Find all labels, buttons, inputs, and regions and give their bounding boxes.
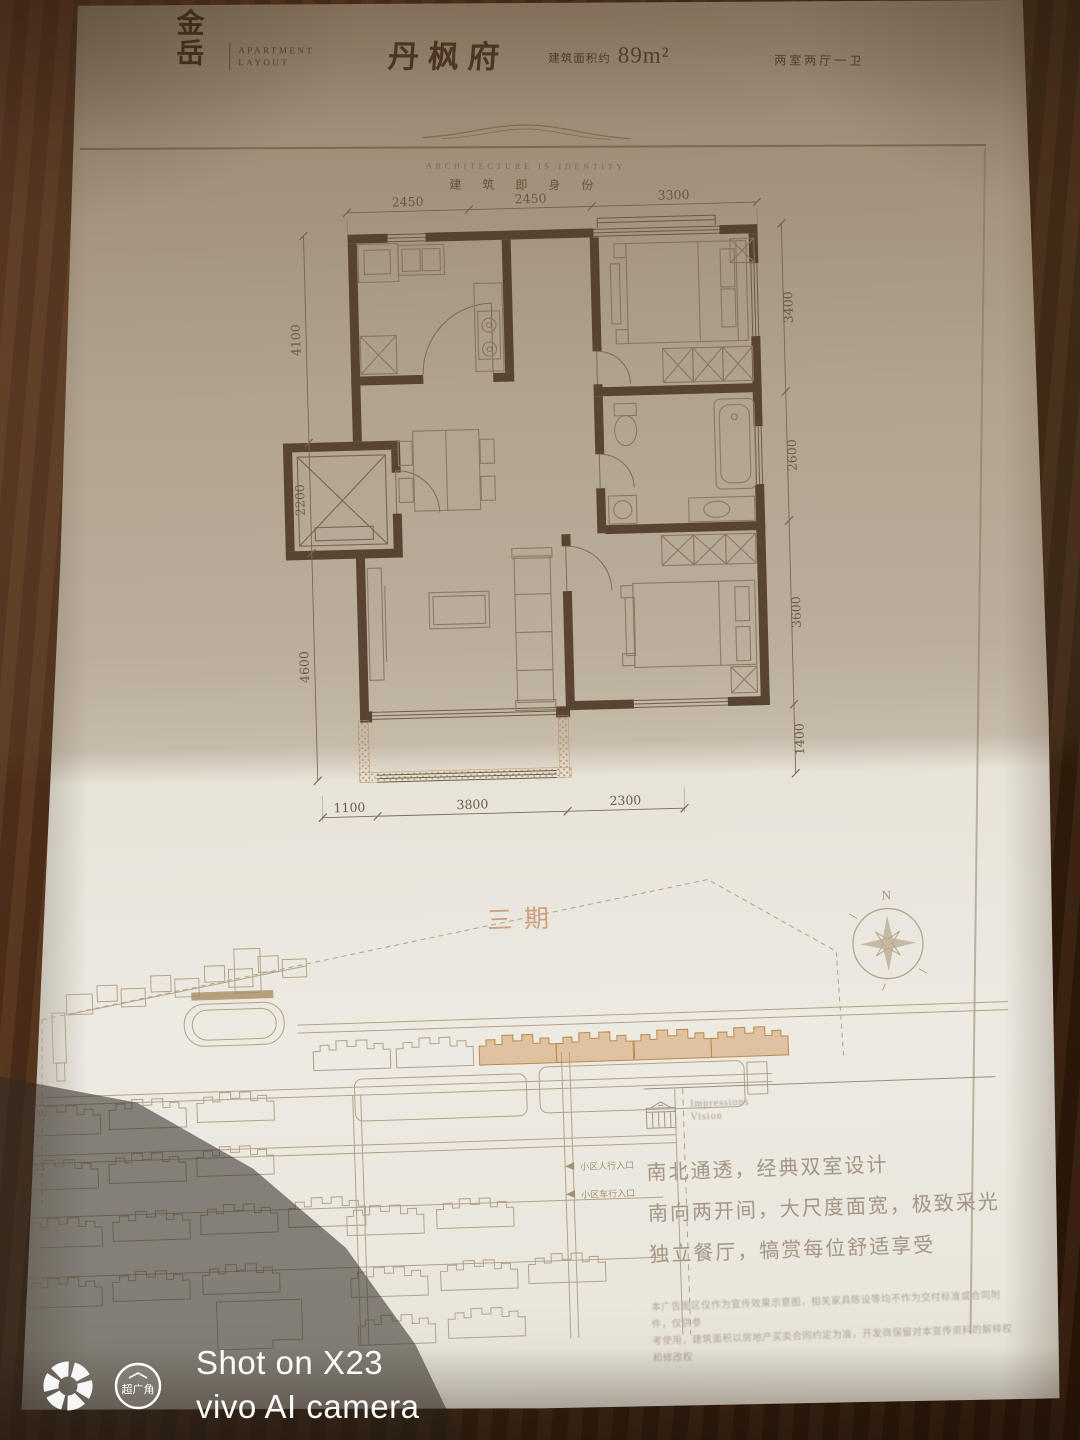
legend-item-2: 小区车行入口 (581, 1187, 635, 1200)
walls-layer (277, 224, 770, 724)
area-label: 建筑面积约 (548, 50, 611, 66)
brand-text-line1: Impressions (690, 1096, 750, 1111)
camera-watermark: 超广角 Shot on X23 vivo AI camera (36, 1338, 506, 1440)
dim-top-1: 2450 (392, 194, 424, 210)
watermark-line2: vivo AI camera (196, 1388, 419, 1426)
floorplan-drawing: 2450 2450 3300 4100 2200 4600 3400 2600 … (256, 183, 813, 857)
info-block: Impressions Vision 南北通透，经典双室设计 南向两开间，大尺度… (644, 1076, 1019, 1349)
watermark-line1: Shot on X23 (196, 1344, 383, 1382)
brand-stamp-icon (644, 1098, 679, 1131)
brand-logo-char-bottom: 岳 (176, 40, 204, 70)
dim-left-1: 4100 (288, 324, 304, 356)
tagline-english: ARCHITECTURE IS IDENTITY (418, 160, 634, 171)
dimension-lines (299, 197, 801, 822)
windows-layer (359, 214, 770, 782)
legend-arrow-icon (566, 1190, 575, 1198)
disclaimer: 本广告图区仅作为宣传效果示意图，相关家具陈设等均不作为交付标准或合同附件，仅供参… (651, 1288, 1019, 1369)
compass-icon: N (848, 886, 927, 991)
logo-divider (229, 42, 230, 70)
compass-north-label: N (881, 887, 891, 902)
project-name: 丹枫府 (387, 31, 510, 77)
brand-logo-char-top: 金 (176, 10, 204, 40)
legend-item-1: 小区人行入口 (580, 1159, 634, 1172)
tagline-block: ARCHITECTURE IS IDENTITY 建 筑 即 身 份 (418, 121, 634, 193)
dim-bottom-2: 3800 (456, 796, 488, 812)
dim-bottom-1: 1100 (333, 800, 365, 816)
paper-sheet: 金 岳 APARTMENT LAYOUT 丹枫府 建筑面积约 89m² 两室两厅… (0, 0, 1080, 1440)
legend-arrow-icon (565, 1162, 574, 1170)
brand-text-line2: Vision (690, 1109, 750, 1124)
logo-caption-line1: APARTMENT (238, 44, 314, 56)
dim-right-1: 3400 (780, 291, 796, 323)
phase-label: 三期 (487, 905, 562, 934)
dim-left-3: 4600 (296, 651, 312, 683)
brand-logo: 金 岳 (176, 10, 204, 70)
dim-right-3: 3600 (788, 596, 804, 628)
logo-caption-line2: LAYOUT (238, 56, 314, 68)
site-amenity-bar (191, 990, 273, 1001)
wide-angle-badge-label: 超广角 (122, 1382, 155, 1396)
dim-right-2: 2600 (784, 439, 800, 471)
logo-caption: APARTMENT LAYOUT (238, 44, 314, 68)
area-info: 建筑面积约 89m² (548, 42, 669, 69)
eave-arc-ornament (418, 121, 634, 142)
dim-top-3: 3300 (657, 187, 689, 203)
dim-right-4: 1400 (791, 723, 807, 755)
selling-points: 南北通透，经典双室设计 南向两开间，大尺度面宽，极致采光 独立餐厅，犒赏每位舒适… (646, 1141, 1016, 1277)
area-value: 89m² (618, 42, 670, 68)
dim-bottom-3: 2300 (609, 792, 641, 808)
photo-of-floorplan-brochure: 金 岳 APARTMENT LAYOUT 丹枫府 建筑面积约 89m² 两室两厅… (0, 0, 1080, 1440)
dim-top-2: 2450 (514, 191, 546, 207)
dim-left-2: 2200 (292, 484, 308, 516)
aperture-icon (36, 1354, 100, 1418)
wide-angle-badge-icon: 超广角 (112, 1360, 164, 1412)
unit-type: 两室两厅一卫 (774, 51, 864, 69)
site-legend: 小区人行入口 小区车行入口 (565, 1159, 635, 1200)
furniture-layer (358, 234, 766, 714)
phase3-buildings (479, 1026, 789, 1065)
